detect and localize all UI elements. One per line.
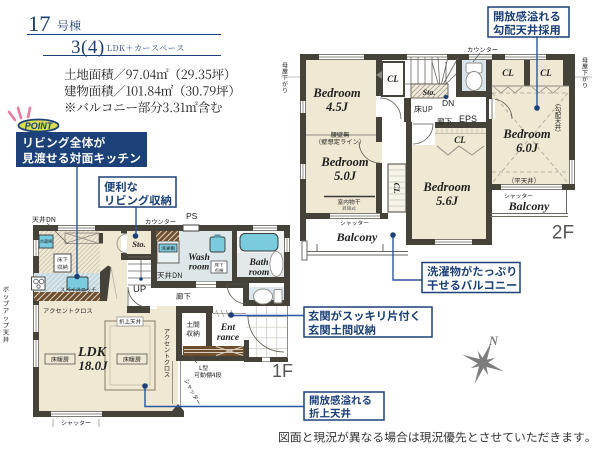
svg-text:CL: CL: [392, 183, 402, 194]
svg-text:6.0J: 6.0J: [516, 141, 539, 155]
svg-text:Balcony: Balcony: [508, 199, 550, 213]
svg-text:Sto.: Sto.: [132, 239, 145, 249]
svg-text:CL: CL: [502, 68, 514, 78]
svg-text:Balcony: Balcony: [336, 230, 378, 244]
svg-text:EPS: EPS: [459, 114, 477, 124]
svg-text:Bath: Bath: [248, 258, 268, 268]
svg-text:room: room: [249, 268, 270, 278]
svg-text:PS: PS: [186, 211, 198, 221]
svg-text:5.0J: 5.0J: [334, 169, 357, 183]
svg-text:CL: CL: [454, 135, 466, 145]
svg-text:room: room: [189, 263, 210, 273]
svg-text:Bedroom: Bedroom: [422, 180, 471, 194]
svg-text:Bedroom: Bedroom: [312, 86, 361, 100]
svg-text:18.0J: 18.0J: [78, 358, 108, 373]
svg-text:Bedroom: Bedroom: [320, 155, 369, 169]
svg-text:3(4): 3(4): [71, 37, 105, 58]
svg-text:CL: CL: [540, 68, 552, 78]
svg-text:2F: 2F: [552, 223, 574, 244]
svg-text:Bedroom: Bedroom: [502, 127, 551, 141]
svg-text:CL: CL: [387, 74, 399, 84]
svg-text:Sto.: Sto.: [423, 88, 436, 97]
svg-text:DN: DN: [442, 98, 454, 108]
svg-text:17: 17: [28, 11, 51, 36]
svg-text:5.6J: 5.6J: [436, 194, 459, 208]
svg-text:POINT: POINT: [25, 121, 54, 131]
svg-text:Ent: Ent: [220, 323, 236, 333]
svg-text:UP: UP: [133, 284, 146, 295]
svg-text:rance: rance: [217, 333, 240, 343]
svg-text:N: N: [488, 334, 499, 348]
svg-text:Wash: Wash: [188, 253, 209, 263]
svg-text:1F: 1F: [272, 361, 293, 381]
svg-text:4.5J: 4.5J: [325, 100, 349, 114]
